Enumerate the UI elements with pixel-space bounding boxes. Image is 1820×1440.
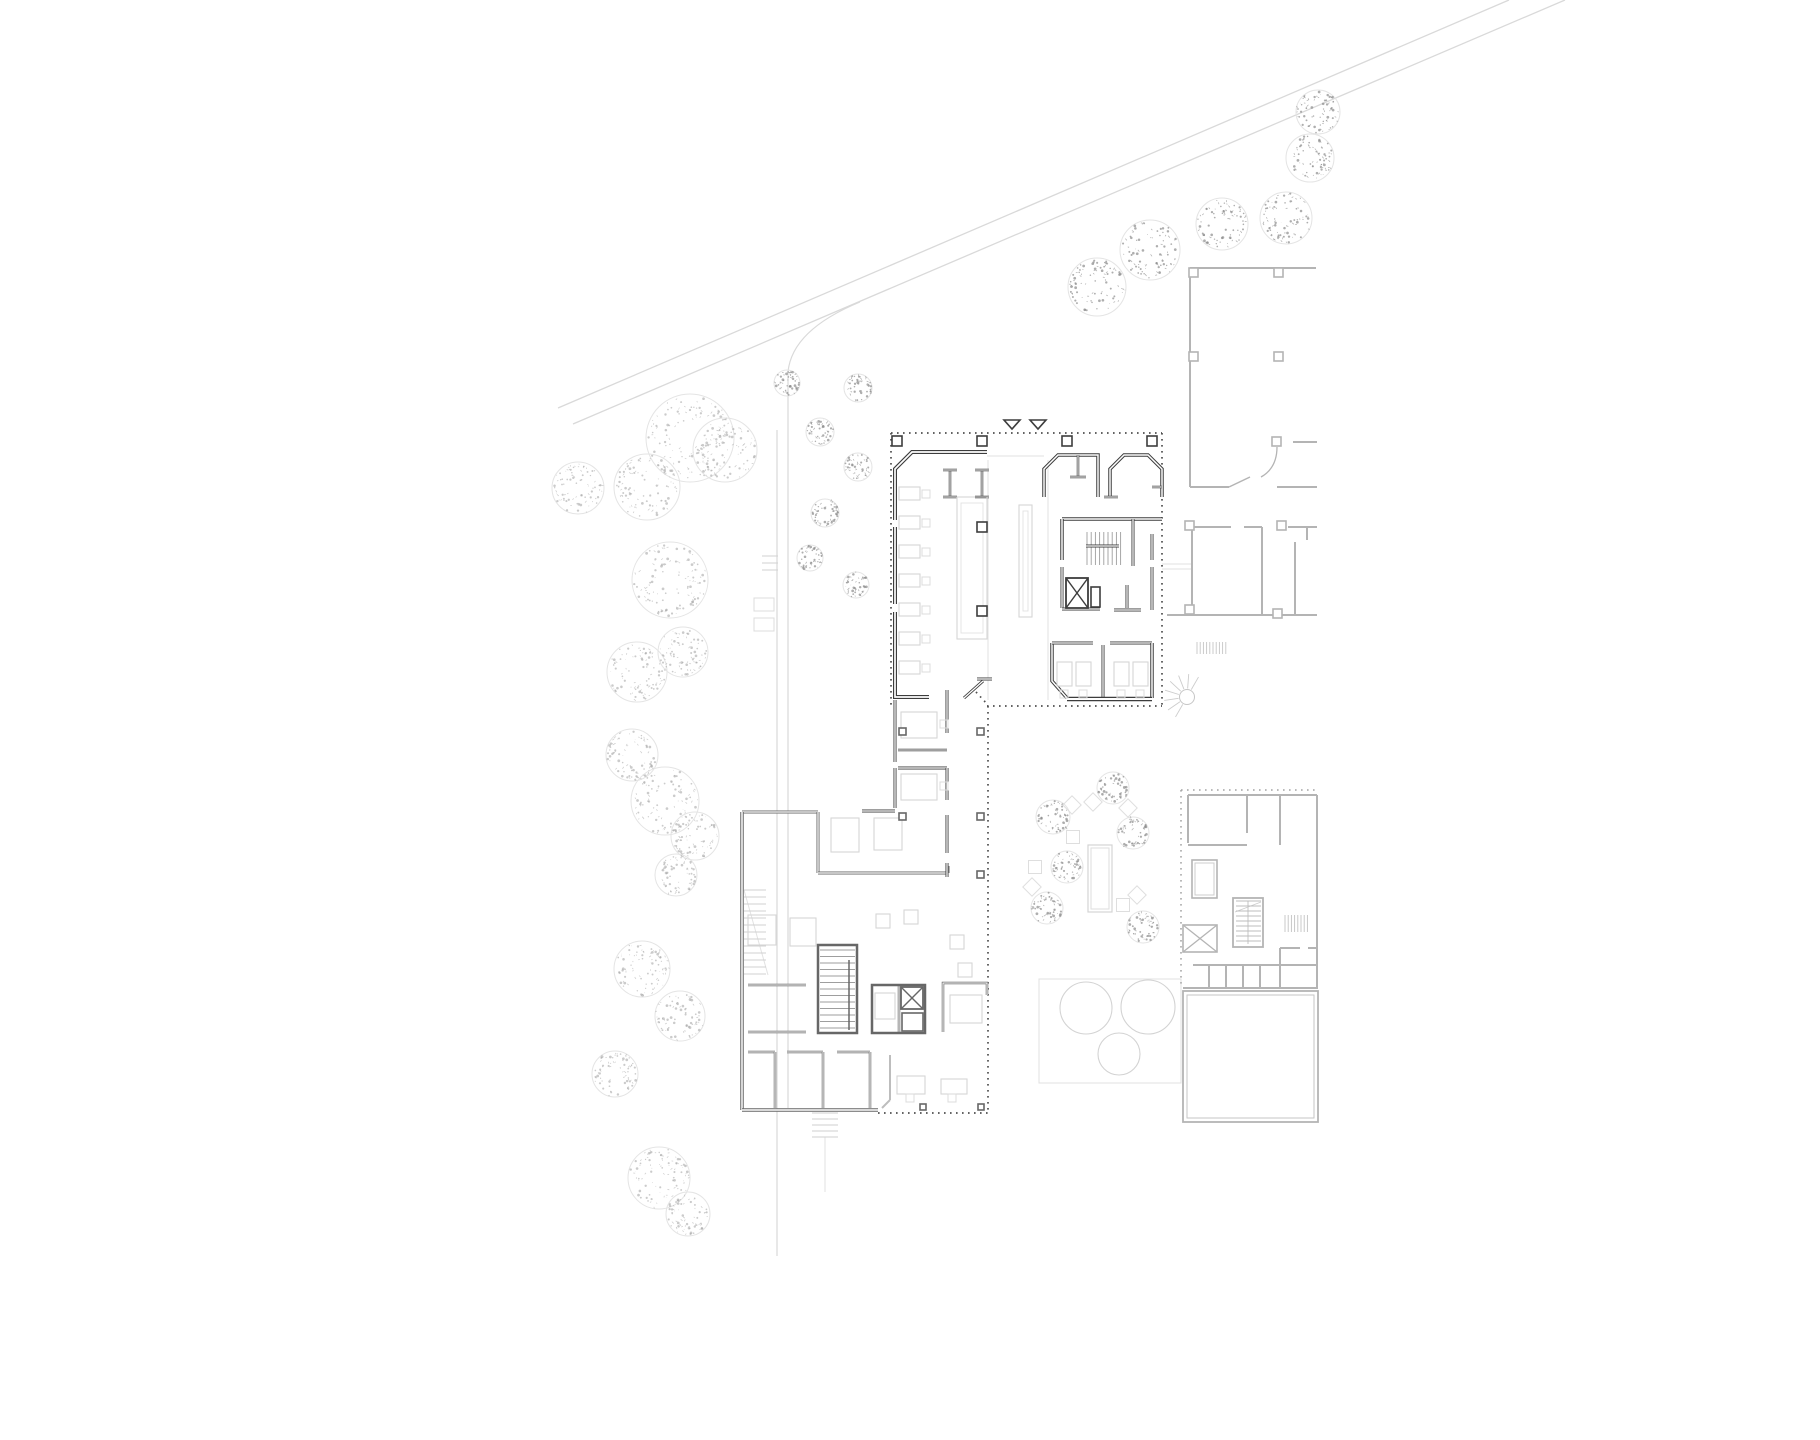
roads-and-paths: [558, 0, 1565, 1256]
tanks-group: [1039, 979, 1181, 1083]
floor-plan-canvas: [0, 0, 1820, 1440]
lower-building-group: [742, 812, 987, 1110]
entrance-markers-group: [1004, 420, 1046, 429]
neighbor-buildings-group: [1164, 268, 1318, 1122]
stairs-group: [744, 532, 1307, 1137]
site-plan-svg: [0, 0, 1820, 1440]
trees-group: [552, 90, 1340, 1236]
faint-lines: [744, 456, 1192, 1192]
courtyard-group: [1023, 793, 1146, 912]
